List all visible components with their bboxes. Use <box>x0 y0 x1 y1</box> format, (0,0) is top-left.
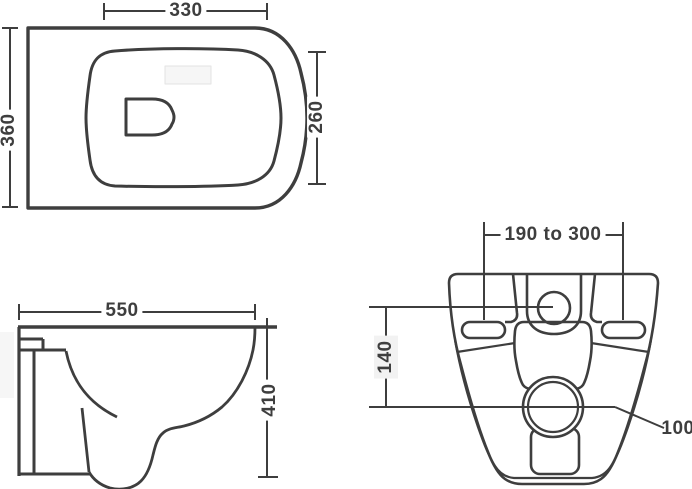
dim-100-leader-line <box>615 407 664 428</box>
side-dimension-lines <box>19 304 278 477</box>
dim-label-rim-width: 330 <box>165 1 206 21</box>
dim-label-inlet-to-outlet: 140 <box>374 335 398 378</box>
bowl-inner-curve <box>66 351 117 417</box>
fixing-slot-left <box>462 322 505 338</box>
dim-label-overall-depth: 360 <box>0 109 19 150</box>
back-view-drawing <box>369 222 664 484</box>
dim-label-height: 410 <box>260 379 280 420</box>
dim-label-seat-depth: 260 <box>307 96 327 137</box>
watermark-rect <box>165 66 211 84</box>
pan-outline-plan <box>28 28 307 208</box>
fixing-slot-right <box>602 322 645 338</box>
dim-label-fixing-centres: 190 to 300 <box>501 225 606 245</box>
side-view-drawing <box>0 304 278 489</box>
technical-drawing-canvas: 330 360 260 550 410 190 to 300 140 100 <box>0 0 692 489</box>
trap-diagonal-line <box>82 408 89 472</box>
top-view-drawing <box>2 3 326 208</box>
bracket-angled-lines <box>457 343 649 352</box>
dim-label-projection: 550 <box>101 301 142 321</box>
watermark-rect-side <box>0 332 14 398</box>
mounting-step-lines <box>19 339 66 474</box>
flush-hole-outline <box>126 99 174 135</box>
dim-label-outlet-diameter: 100 <box>660 419 692 439</box>
bowl-front-outline <box>89 327 255 489</box>
